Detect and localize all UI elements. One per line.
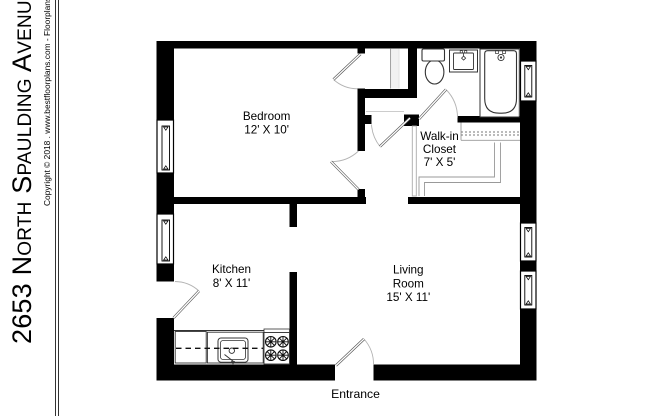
svg-text:Entrance: Entrance <box>331 387 380 401</box>
svg-text:7' X 5': 7' X 5' <box>424 156 456 169</box>
svg-text:2653 North Spaulding Avenue: 2653 North Spaulding Avenue <box>7 0 37 344</box>
svg-text:Copyright © 2018 . www.bestflo: Copyright © 2018 . www.bestfloorplans.co… <box>42 0 52 206</box>
svg-text:Room: Room <box>393 277 424 290</box>
svg-text:Closet: Closet <box>423 143 457 156</box>
svg-text:Walk-in: Walk-in <box>420 130 459 143</box>
svg-text:Kitchen: Kitchen <box>212 263 251 276</box>
svg-text:Bedroom: Bedroom <box>243 110 290 123</box>
svg-text:12' X 10': 12' X 10' <box>244 124 289 137</box>
svg-text:15' X 11': 15' X 11' <box>386 291 430 304</box>
svg-text:8' X 11': 8' X 11' <box>213 277 250 290</box>
svg-text:Living: Living <box>393 264 424 277</box>
